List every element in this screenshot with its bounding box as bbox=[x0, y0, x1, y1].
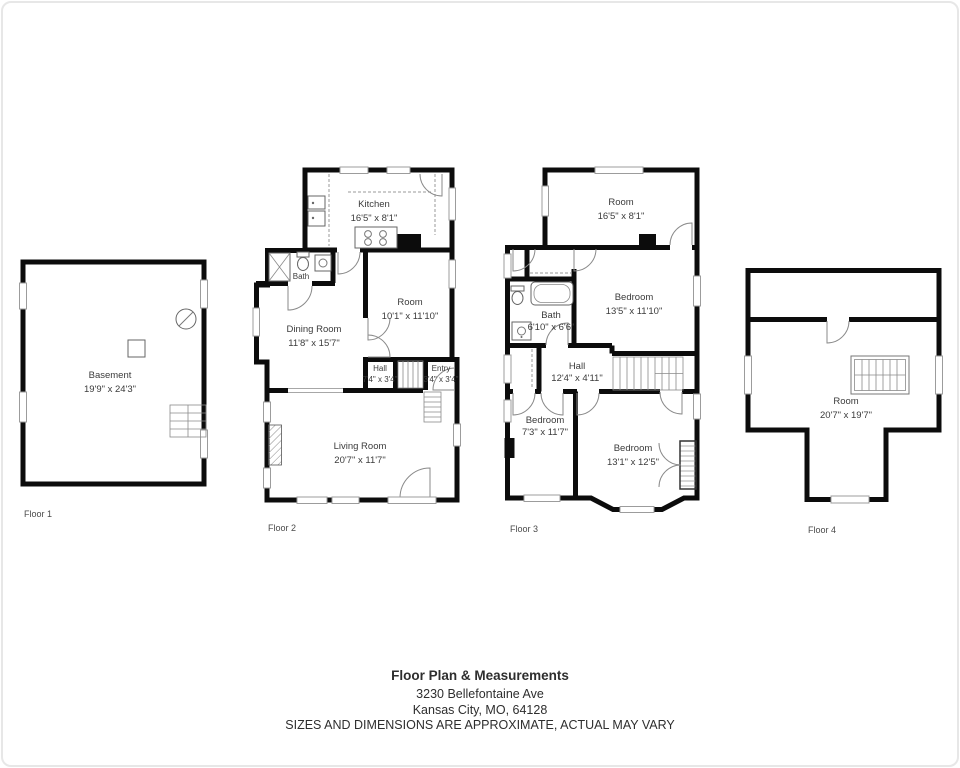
cased-opening bbox=[288, 388, 343, 394]
room-label-bedroom1: Bedroom bbox=[615, 292, 654, 303]
room-label-dining: Dining Room bbox=[287, 324, 342, 335]
room-label-entry: Entry bbox=[432, 364, 451, 373]
floor-plan-drawing: Basement 19'9" x 24'3" Floor 1 6'0" x 3'… bbox=[0, 0, 960, 768]
room-label-hall-f2: Hall bbox=[373, 364, 387, 373]
bathtub-icon bbox=[531, 282, 573, 305]
room-dims-hall-f3: 12'4" x 4'11" bbox=[551, 373, 602, 384]
room-dims-living: 20'7" x 11'7" bbox=[334, 455, 385, 466]
footer-disclaimer: SIZES AND DIMENSIONS ARE APPROXIMATE, AC… bbox=[0, 718, 960, 734]
room-label-hall-f3: Hall bbox=[569, 361, 585, 372]
chimney-block bbox=[397, 234, 421, 250]
room-label-kitchen: Kitchen bbox=[358, 199, 390, 210]
room-label-bedroom2: Bedroom bbox=[526, 415, 565, 426]
room-label-room-f3: Room bbox=[608, 197, 633, 208]
room-label-basement: Basement bbox=[89, 370, 132, 381]
room-dims-room-f2: 10'1" x 11'10" bbox=[382, 311, 439, 322]
floor-1-label: Floor 1 bbox=[24, 509, 52, 519]
room-dims-dining: 11'8" x 15'7" bbox=[288, 338, 339, 349]
room-label-bedroom3: Bedroom bbox=[614, 443, 653, 454]
electric-meter-icon bbox=[176, 309, 196, 329]
room-dims-hall-f2: 7'4" x 3'4" bbox=[363, 375, 398, 384]
shower-icon bbox=[269, 253, 290, 281]
room-label-bath-f2: Bath bbox=[293, 272, 309, 281]
floor-3-label: Floor 3 bbox=[510, 524, 538, 534]
footer-address-line1: 3230 Bellefontaine Ave bbox=[0, 687, 960, 703]
footer-address-line2: Kansas City, MO, 64128 bbox=[0, 703, 960, 719]
room-label-room-f2: Room bbox=[397, 297, 422, 308]
floor-3-plan: Room 16'5" x 8'1" Bedroom 13'5" x 11'10"… bbox=[504, 167, 701, 534]
room-label-living: Living Room bbox=[334, 441, 387, 452]
floor-4-label: Floor 4 bbox=[808, 525, 836, 535]
footer: Floor Plan & Measurements 3230 Bellefont… bbox=[0, 668, 960, 734]
bathroom-sink-icon bbox=[315, 255, 331, 271]
stove-icon bbox=[355, 227, 397, 248]
floor-2-label: Floor 2 bbox=[268, 523, 296, 533]
floor-1-plan: Basement 19'9" x 24'3" Floor 1 bbox=[20, 262, 208, 519]
kitchen-sink-icon bbox=[308, 196, 325, 226]
chimney-block bbox=[639, 234, 656, 248]
floor-4-outer-walls bbox=[748, 271, 939, 500]
floor-plan-page: Basement 19'9" x 24'3" Floor 1 6'0" x 3'… bbox=[0, 0, 960, 768]
room-dims-room-f3: 16'5" x 8'1" bbox=[598, 211, 645, 222]
room-dims-entry: 3'4" x 3'4" bbox=[424, 375, 459, 384]
room-dims-kitchen: 16'5" x 8'1" bbox=[351, 213, 398, 224]
support-post bbox=[128, 340, 145, 357]
fireplace bbox=[269, 425, 282, 465]
room-dims-bedroom2: 7'3" x 11'7" bbox=[522, 427, 568, 438]
toilet-icon bbox=[297, 252, 309, 271]
floor-4-plan: Room 20'7" x 19'7" Floor 4 bbox=[745, 271, 943, 536]
room-label-room-f4: Room bbox=[833, 396, 858, 407]
room-dims-basement: 19'9" x 24'3" bbox=[84, 384, 136, 395]
chimney-block bbox=[505, 438, 515, 458]
toilet-icon bbox=[511, 286, 524, 305]
room-dims-room-f4: 20'7" x 19'7" bbox=[820, 410, 872, 421]
room-dims-bedroom3: 13'1" x 12'5" bbox=[607, 457, 659, 468]
room-dims-bedroom1: 13'5" x 11'10" bbox=[606, 306, 663, 317]
footer-title: Floor Plan & Measurements bbox=[0, 668, 960, 683]
room-label-bath-f3: Bath bbox=[541, 310, 561, 321]
floor-2-plan: 6'0" x 3'0" bbox=[253, 167, 461, 533]
room-dims-bath-f3: 6'10" x 6'6" bbox=[528, 322, 575, 333]
